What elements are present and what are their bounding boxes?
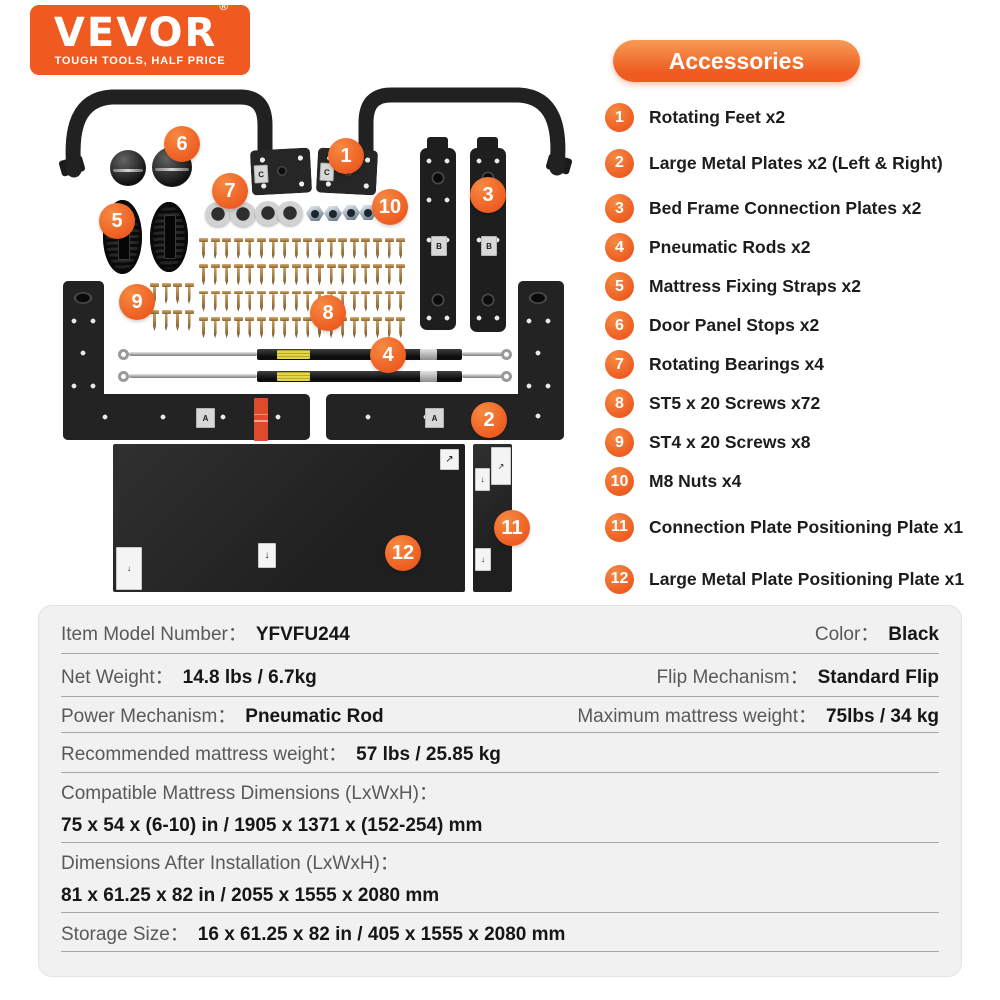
spec-value: Pneumatic Rod xyxy=(245,706,383,728)
accessory-label: Large Metal Plates x2 (Left & Right) xyxy=(649,153,943,174)
screw xyxy=(222,291,231,312)
screw xyxy=(280,317,289,338)
spec-value: 14.8 lbs / 6.7kg xyxy=(183,667,317,689)
panel-label-icon: ↓ xyxy=(475,468,490,491)
screw xyxy=(245,264,254,285)
door-panel-stop xyxy=(110,150,146,186)
accessory-number-badge: 2 xyxy=(605,149,634,178)
spec-label: Recommended mattress weight： xyxy=(61,739,347,766)
bed-frame-connection-plate: B xyxy=(420,148,456,330)
rotating-bearing xyxy=(277,201,303,225)
diagram-badge-5: 5 xyxy=(99,203,135,239)
accessory-label: Connection Plate Positioning Plate x1 xyxy=(649,517,963,538)
screw xyxy=(173,310,182,331)
spec-label: Power Mechanism： xyxy=(61,701,236,728)
panel-label-icon: ↓ xyxy=(258,543,276,568)
panel-label-text: ↗ xyxy=(491,447,511,485)
screw xyxy=(361,317,370,338)
spec-row: Storage Size：16 x 61.25 x 82 in / 405 x … xyxy=(61,913,939,952)
accessory-item-3: 3Bed Frame Connection Plates x2 xyxy=(605,189,995,228)
screw xyxy=(315,238,324,259)
screw xyxy=(327,264,336,285)
spec-value: 81 x 61.25 x 82 in / 2055 x 1555 x 2080 … xyxy=(61,885,439,907)
screw xyxy=(269,238,278,259)
m8-nut xyxy=(306,206,324,221)
screw xyxy=(257,291,266,312)
accessory-number-badge: 11 xyxy=(605,513,634,542)
screw xyxy=(361,291,370,312)
panel-label-icon: ↓ xyxy=(475,548,491,571)
accessory-item-8: 8ST5 x 20 Screws x72 xyxy=(605,384,995,423)
vevor-red-sticker xyxy=(254,398,268,441)
accessory-item-10: 10M8 Nuts x4 xyxy=(605,462,995,501)
screw xyxy=(292,291,301,312)
screw xyxy=(385,317,394,338)
plate-position-sticker: B xyxy=(431,236,447,256)
diagram-badge-8: 8 xyxy=(310,295,346,331)
m8-nut xyxy=(324,206,342,221)
accessory-item-4: 4Pneumatic Rods x2 xyxy=(605,228,995,267)
screw xyxy=(315,264,324,285)
accessory-item-2: 2Large Metal Plates x2 (Left & Right) xyxy=(605,137,995,189)
spec-table: Item Model Number：YFVFU244Color：BlackNet… xyxy=(38,605,962,977)
screw xyxy=(373,238,382,259)
accessory-number-badge: 7 xyxy=(605,350,634,379)
screw xyxy=(361,238,370,259)
spec-row: Dimensions After Installation (LxWxH)：81… xyxy=(61,843,939,913)
accessory-item-9: 9ST4 x 20 Screws x8 xyxy=(605,423,995,462)
panel-label-icon: ↗ xyxy=(440,449,459,470)
screw xyxy=(269,264,278,285)
screw xyxy=(280,238,289,259)
spec-value: 75 x 54 x (6-10) in / 1905 x 1371 x (152… xyxy=(61,815,482,837)
screw xyxy=(303,264,312,285)
rod-warning-label xyxy=(277,372,310,381)
screw xyxy=(222,317,231,338)
spec-cell: Item Model Number：YFVFU244 xyxy=(61,619,350,646)
screw xyxy=(350,317,359,338)
screw xyxy=(373,317,382,338)
large-metal-plate-positioning-plate: ↗ ↓ ↓ xyxy=(113,444,465,592)
screw xyxy=(173,283,182,304)
spec-label: Net Weight： xyxy=(61,662,174,689)
plate-position-sticker: A xyxy=(196,408,215,428)
screw xyxy=(396,291,405,312)
screw xyxy=(199,264,208,285)
accessory-label: Mattress Fixing Straps x2 xyxy=(649,276,861,297)
spec-label: Compatible Mattress Dimensions (LxWxH)： xyxy=(61,778,438,805)
diagram-badge-3: 3 xyxy=(470,177,506,213)
accessory-item-6: 6Door Panel Stops x2 xyxy=(605,306,995,345)
bracket-position-sticker: C xyxy=(254,165,269,184)
screw xyxy=(245,317,254,338)
screw xyxy=(185,310,194,331)
screw xyxy=(245,238,254,259)
screw xyxy=(222,264,231,285)
spec-cell: Recommended mattress weight：57 lbs / 25.… xyxy=(61,739,501,766)
accessory-label: ST4 x 20 Screws x8 xyxy=(649,432,811,453)
screw xyxy=(385,264,394,285)
rod-warning-label xyxy=(277,350,310,359)
bed-frame-connection-plate: B xyxy=(470,148,506,332)
accessory-number-badge: 9 xyxy=(605,428,634,457)
accessories-title: Accessories xyxy=(613,40,860,82)
spec-cell: Maximum mattress weight：75lbs / 34 kg xyxy=(577,701,939,728)
screw xyxy=(350,291,359,312)
spec-cell: Power Mechanism：Pneumatic Rod xyxy=(61,701,384,728)
spec-row: Compatible Mattress Dimensions (LxWxH)：7… xyxy=(61,773,939,843)
screw xyxy=(396,264,405,285)
screw xyxy=(338,238,347,259)
mattress-fixing-strap xyxy=(150,202,188,272)
diagram-badge-1: 1 xyxy=(328,138,364,174)
spec-cell: Storage Size：16 x 61.25 x 82 in / 405 x … xyxy=(61,919,565,946)
accessory-label: Bed Frame Connection Plates x2 xyxy=(649,198,921,219)
diagram-badge-7: 7 xyxy=(212,173,248,209)
accessories-list: 1Rotating Feet x22Large Metal Plates x2 … xyxy=(605,98,995,605)
accessory-number-badge: 8 xyxy=(605,389,634,418)
spec-row: Item Model Number：YFVFU244Color：Black xyxy=(61,612,939,654)
accessory-label: ST5 x 20 Screws x72 xyxy=(649,393,820,414)
screw xyxy=(396,238,405,259)
diagram-badge-4: 4 xyxy=(370,337,406,373)
accessory-number-badge: 3 xyxy=(605,194,634,223)
screw xyxy=(280,291,289,312)
screw xyxy=(257,238,266,259)
accessory-item-12: 12Large Metal Plate Positioning Plate x1 xyxy=(605,553,995,605)
spec-cell: Flip Mechanism：Standard Flip xyxy=(657,662,939,689)
screw xyxy=(257,264,266,285)
diagram-badge-2: 2 xyxy=(471,402,507,438)
spec-label: Flip Mechanism： xyxy=(657,662,809,689)
plate-position-sticker: B xyxy=(481,236,497,256)
spec-label: Dimensions After Installation (LxWxH)： xyxy=(61,848,399,875)
accessory-label: M8 Nuts x4 xyxy=(649,471,741,492)
screw xyxy=(211,291,220,312)
m8-nut xyxy=(342,205,360,220)
plate-position-sticker: A xyxy=(425,408,444,428)
spec-row: Recommended mattress weight：57 lbs / 25.… xyxy=(61,733,939,773)
screw xyxy=(373,291,382,312)
screw xyxy=(211,264,220,285)
accessory-item-7: 7Rotating Bearings x4 xyxy=(605,345,995,384)
screw xyxy=(292,264,301,285)
screw xyxy=(222,238,231,259)
screw xyxy=(234,291,243,312)
diagram-badge-6: 6 xyxy=(164,126,200,162)
spec-value: Black xyxy=(888,624,939,646)
screw xyxy=(373,264,382,285)
screw xyxy=(150,310,159,331)
screw xyxy=(327,238,336,259)
screw xyxy=(199,291,208,312)
screw xyxy=(199,317,208,338)
screw xyxy=(211,238,220,259)
accessory-number-badge: 10 xyxy=(605,467,634,496)
screw xyxy=(280,264,289,285)
screw xyxy=(185,283,194,304)
diagram-badge-11: 11 xyxy=(494,510,530,546)
screw xyxy=(162,283,171,304)
screw xyxy=(211,317,220,338)
diagram-badge-9: 9 xyxy=(119,284,155,320)
accessory-label: Rotating Feet x2 xyxy=(649,107,785,128)
screw xyxy=(350,238,359,259)
accessory-number-badge: 1 xyxy=(605,103,634,132)
accessory-item-11: 11Connection Plate Positioning Plate x1 xyxy=(605,501,995,553)
spec-label: Maximum mattress weight： xyxy=(577,701,817,728)
screw xyxy=(303,238,312,259)
accessory-label: Rotating Bearings x4 xyxy=(649,354,824,375)
accessory-number-badge: 6 xyxy=(605,311,634,340)
spec-row: Net Weight：14.8 lbs / 6.7kgFlip Mechanis… xyxy=(61,654,939,697)
spec-value: Standard Flip xyxy=(818,667,939,689)
screw xyxy=(361,264,370,285)
screw xyxy=(234,238,243,259)
spec-cell: Color：Black xyxy=(815,619,939,646)
spec-value: YFVFU244 xyxy=(256,624,350,646)
spec-label: Color： xyxy=(815,619,879,646)
accessory-label: Door Panel Stops x2 xyxy=(649,315,819,336)
screw xyxy=(269,291,278,312)
screw xyxy=(338,264,347,285)
screw xyxy=(350,264,359,285)
screw xyxy=(269,317,278,338)
accessory-number-badge: 12 xyxy=(605,565,634,594)
diagram-badge-12: 12 xyxy=(385,535,421,571)
screw xyxy=(162,310,171,331)
rotating-foot-bracket-left: C xyxy=(250,147,312,195)
diagram-badge-10: 10 xyxy=(372,189,408,225)
screw xyxy=(257,317,266,338)
screw xyxy=(199,238,208,259)
spec-row: Power Mechanism：Pneumatic RodMaximum mat… xyxy=(61,697,939,733)
accessory-number-badge: 4 xyxy=(605,233,634,262)
accessory-number-badge: 5 xyxy=(605,272,634,301)
screw xyxy=(292,238,301,259)
screw xyxy=(234,317,243,338)
spec-label: Item Model Number： xyxy=(61,619,247,646)
spec-value: 16 x 61.25 x 82 in / 405 x 1555 x 2080 m… xyxy=(198,924,566,946)
parts-diagram: C C B B xyxy=(0,0,600,600)
screw xyxy=(292,317,301,338)
screw xyxy=(245,291,254,312)
spec-label: Storage Size： xyxy=(61,919,189,946)
spec-cell: Net Weight：14.8 lbs / 6.7kg xyxy=(61,662,317,689)
accessory-label: Pneumatic Rods x2 xyxy=(649,237,810,258)
spec-value: 75lbs / 34 kg xyxy=(826,706,939,728)
accessory-label: Large Metal Plate Positioning Plate x1 xyxy=(649,569,964,590)
screw xyxy=(385,238,394,259)
accessory-item-5: 5Mattress Fixing Straps x2 xyxy=(605,267,995,306)
spec-value: 57 lbs / 25.85 kg xyxy=(356,744,501,766)
screw xyxy=(385,291,394,312)
panel-label-text: ↓ xyxy=(116,547,142,590)
accessory-item-1: 1Rotating Feet x2 xyxy=(605,98,995,137)
screw xyxy=(234,264,243,285)
screw xyxy=(396,317,405,338)
